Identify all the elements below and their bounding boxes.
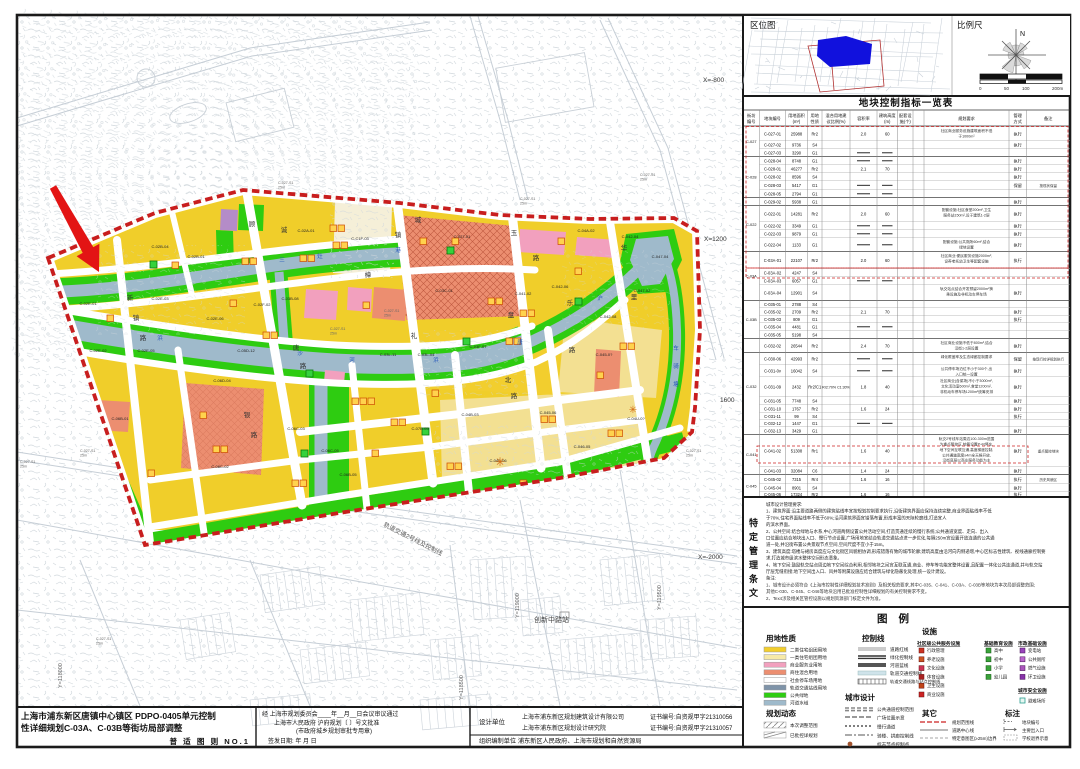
svg-text:1447: 1447 [792, 421, 802, 426]
svg-text:8596: 8596 [792, 174, 802, 179]
svg-text:Rr2: Rr2 [811, 131, 818, 136]
svg-text:口位置应结合地块出入口、慢行节点设置,广场用地宜结合轨道交通: 口位置应结合地块出入口、慢行节点设置,广场用地宜结合轨道交通站点进一步优化,每隔… [766, 535, 995, 542]
svg-text:管理: 管理 [1014, 112, 1023, 119]
svg-text:3349: 3349 [792, 223, 802, 228]
svg-text:S4: S4 [812, 398, 818, 403]
svg-text:25m: 25m [96, 642, 103, 646]
svg-text:C-02A-01: C-02A-01 [297, 228, 315, 233]
svg-text:3429: 3429 [792, 428, 802, 433]
svg-text:执行: 执行 [1014, 413, 1022, 419]
svg-text:C-032-13: C-032-13 [764, 428, 782, 433]
svg-text:定: 定 [748, 531, 759, 542]
svg-text:S4: S4 [812, 368, 818, 373]
svg-text:新: 新 [127, 293, 134, 302]
svg-text:46277: 46277 [791, 166, 803, 171]
svg-text:25m: 25m [520, 202, 527, 206]
svg-text:24: 24 [885, 468, 890, 473]
svg-text:809: 809 [793, 317, 801, 322]
svg-text:9879: 9879 [792, 231, 802, 236]
svg-text:条: 条 [748, 573, 759, 584]
svg-text:C-045-04: C-045-04 [764, 485, 782, 490]
svg-text:上海市浦东新区规划设计研究院: 上海市浦东新区规划设计研究院 [522, 724, 606, 732]
svg-text:32084: 32084 [791, 468, 803, 473]
svg-text:100: 100 [1022, 86, 1030, 91]
svg-text:执行: 执行 [1014, 173, 1022, 179]
svg-text:Y=119500: Y=119500 [657, 585, 663, 610]
svg-text:24: 24 [885, 406, 890, 411]
svg-text:4481: 4481 [792, 324, 802, 329]
svg-text:唐: 唐 [517, 338, 523, 346]
svg-text:轨道交通控制线: 轨道交通控制线 [890, 670, 923, 677]
svg-text:C-032: C-032 [746, 384, 757, 389]
svg-text:普 适 图 则 NO.1: 普 适 图 则 NO.1 [169, 736, 250, 746]
svg-text:42993: 42993 [791, 356, 803, 361]
svg-text:60: 60 [885, 258, 890, 263]
svg-text:G1: G1 [812, 421, 818, 426]
svg-text:2.4: 2.4 [861, 343, 867, 348]
svg-text:路: 路 [140, 333, 147, 342]
svg-text:行政管理: 行政管理 [927, 647, 945, 654]
svg-text:C-03A-04: C-03A-04 [764, 290, 782, 295]
svg-text:C-031-0v: C-031-0v [764, 368, 782, 373]
svg-text:玉: 玉 [511, 229, 518, 237]
svg-text:C-03L-11: C-03L-11 [380, 352, 397, 357]
svg-text:执行: 执行 [1014, 405, 1022, 411]
svg-text:7315: 7315 [792, 477, 802, 482]
svg-text:轨道交通站线用地: 轨道交通站线用地 [790, 684, 827, 691]
svg-text:C-022-04: C-022-04 [764, 242, 782, 247]
svg-text:道路红线: 道路红线 [890, 646, 909, 653]
svg-text:特: 特 [749, 517, 758, 528]
svg-text:6057: 6057 [792, 278, 802, 283]
svg-text:X=-800: X=-800 [703, 77, 725, 84]
svg-text:3、建筑高度:塔楼与裙房高度应与文化街区风貌相协调,形成错落: 3、建筑高度:塔楼与裙房高度应与文化街区风貌相协调,形成错落有致的城市轮廓;建筑… [766, 548, 1046, 555]
svg-text:C-027-S1: C-027-S1 [686, 449, 701, 453]
svg-text:河道水域: 河道水域 [790, 700, 809, 707]
svg-text:社区商业服务设施建筑面积不低: 社区商业服务设施建筑面积不低 [941, 128, 993, 133]
svg-text:C-06D-04: C-06D-04 [213, 378, 231, 383]
svg-text:公共停车场泊位不小于300个,出: 公共停车场泊位不小于300个,出 [941, 366, 993, 371]
svg-text:路: 路 [511, 391, 518, 400]
svg-text:G1: G1 [812, 242, 818, 247]
svg-text:社区级公共服务设施: 社区级公共服务设施 [916, 640, 960, 647]
svg-text:C-029-02: C-029-02 [764, 199, 782, 204]
svg-text:创新中路站: 创新中路站 [534, 615, 569, 624]
svg-text:社区商业(含菜场)不小于3000m²,: 社区商业(含菜场)不小于3000m², [940, 378, 993, 383]
svg-text:上海市浦东新区规划建筑设计有限公司: 上海市浦东新区规划建筑设计有限公司 [522, 713, 624, 721]
svg-text:C-041-02: C-041-02 [515, 291, 532, 296]
svg-text:25m: 25m [330, 332, 337, 336]
svg-text:性质: 性质 [811, 118, 819, 125]
svg-text:C-02E-05: C-02E-05 [137, 348, 155, 353]
svg-text:Rr2: Rr2 [811, 406, 818, 411]
svg-text:G1: G1 [812, 317, 818, 322]
svg-text:C-042-06: C-042-06 [552, 284, 569, 289]
svg-text:C-02F-02: C-02F-02 [254, 302, 272, 307]
svg-text:编号: 编号 [747, 118, 755, 125]
svg-text:执行: 执行 [1014, 257, 1022, 263]
svg-text:文: 文 [748, 587, 759, 598]
svg-text:25m: 25m [686, 454, 693, 458]
svg-text:街坊: 街坊 [747, 112, 755, 119]
svg-text:(m²): (m²) [793, 119, 801, 124]
svg-text:环卫设施: 环卫设施 [1028, 673, 1046, 680]
svg-text:设施: 设施 [922, 626, 937, 636]
svg-text:C-03C-01: C-03C-01 [435, 288, 453, 293]
svg-text:C-04U-0?: C-04U-0? [627, 416, 645, 421]
svg-text:道一处,并沿街布置公共景观节点空间,空间尺度不宜小于15m。: 道一处,并沿街布置公共景观节点空间,空间尺度不宜小于15m。 [766, 541, 887, 548]
svg-text:区位图: 区位图 [750, 20, 776, 30]
svg-text:2788: 2788 [792, 302, 802, 307]
svg-text:C-03B-08: C-03B-08 [281, 296, 299, 301]
svg-text:25m: 25m [640, 178, 647, 182]
svg-text:C-05D-12: C-05D-12 [237, 348, 255, 353]
svg-text:的滨水界面。: 的滨水界面。 [766, 521, 792, 528]
svg-text:规划要求: 规划要求 [958, 115, 976, 122]
svg-text:C-035-02: C-035-02 [764, 309, 782, 314]
svg-text:C-06C-02: C-06C-02 [211, 464, 229, 469]
svg-text:25988: 25988 [791, 131, 803, 136]
svg-text:1767: 1767 [792, 406, 802, 411]
svg-text:C-04B-03: C-04B-03 [461, 412, 479, 417]
svg-text:公共厕所: 公共厕所 [1028, 656, 1046, 663]
svg-text:执行: 执行 [1014, 210, 1022, 216]
svg-text:商业服务业用地: 商业服务业用地 [790, 662, 823, 669]
svg-text:2.0: 2.0 [861, 211, 867, 216]
svg-text:S4: S4 [812, 332, 818, 337]
svg-text:C-028-02: C-028-02 [764, 174, 782, 179]
svg-text:求,打造城市级滨水整体空间形态意象。: 求,打造城市级滨水整体空间形态意象。 [766, 555, 842, 562]
svg-text:执行: 执行 [1014, 165, 1022, 171]
svg-text:执行: 执行 [1014, 130, 1022, 136]
svg-text:14281: 14281 [791, 211, 803, 216]
svg-text:C-028-01: C-028-01 [764, 166, 782, 171]
svg-text:1.6: 1.6 [861, 477, 867, 482]
svg-text:执行: 执行 [1014, 308, 1022, 314]
svg-text:镇: 镇 [395, 230, 402, 239]
svg-text:C-045-02: C-045-02 [764, 477, 782, 482]
svg-text:2794: 2794 [792, 191, 802, 196]
svg-text:25m: 25m [20, 465, 27, 469]
svg-text:Y=118500: Y=118500 [459, 675, 465, 700]
svg-text:C-027-S1: C-027-S1 [96, 637, 111, 641]
svg-text:配套设: 配套设 [899, 112, 912, 119]
svg-text:灶: 灶 [317, 252, 323, 260]
svg-text:轨交站点结合开发预留2000m²换: 轨交站点结合开发预留2000m²换 [940, 286, 993, 291]
svg-text:C-027-S1: C-027-S1 [20, 460, 35, 464]
svg-text:顾: 顾 [249, 220, 256, 228]
svg-text:执行: 执行 [1014, 222, 1022, 228]
svg-text:特定意图区(≥25m)边界: 特定意图区(≥25m)边界 [952, 735, 997, 742]
svg-text:G1: G1 [812, 324, 818, 329]
svg-text:25m: 25m [278, 186, 285, 190]
svg-text:基础教育设施: 基础教育设施 [984, 640, 1013, 647]
svg-text:C-031-10: C-031-10 [764, 406, 782, 411]
svg-text:路: 路 [300, 361, 307, 370]
svg-text:C-022-01: C-022-01 [764, 211, 782, 216]
svg-text:✳: ✳ [495, 455, 505, 469]
svg-text:理: 理 [749, 560, 758, 570]
svg-text:设养老托幼卫生等配套设施: 设养老托幼卫生等配套设施 [944, 259, 989, 264]
svg-text:25m: 25m [80, 454, 87, 458]
svg-text:C-031-09: C-031-09 [764, 384, 782, 389]
svg-text:银: 银 [244, 410, 251, 419]
svg-text:C-027-S1: C-027-S1 [278, 181, 293, 185]
svg-text:避难场所: 避难场所 [1028, 698, 1046, 705]
svg-text:C-032-12: C-032-12 [764, 421, 782, 426]
svg-text:C-031-05: C-031-05 [764, 398, 782, 403]
svg-text:C-046-05: C-046-05 [574, 444, 591, 449]
svg-text:乐: 乐 [567, 298, 574, 307]
svg-text:5417: 5417 [792, 183, 802, 188]
svg-text:其他C-030、C-045、C-046等地块沿用已批准控制性: 其他C-030、C-045、C-046等地块沿用已批准控制性详细规划的有关控制要… [766, 588, 929, 595]
svg-text:C-07B-05: C-07B-05 [411, 426, 429, 431]
svg-text:控制线: 控制线 [862, 633, 885, 643]
svg-text:C-027-01: C-027-01 [454, 234, 471, 239]
svg-text:地块编号: 地块编号 [1022, 719, 1040, 726]
svg-text:变电站: 变电站 [1028, 647, 1042, 654]
svg-text:8748: 8748 [792, 158, 802, 163]
svg-text:执行: 执行 [1014, 316, 1022, 322]
svg-text:C-027-S1: C-027-S1 [384, 309, 399, 313]
svg-text:养老设施: 养老设施 [927, 656, 945, 663]
svg-text:G1: G1 [812, 428, 818, 433]
svg-text:C-028-03: C-028-03 [764, 183, 782, 188]
svg-text:经 上海市规划委员会____年__月__日会议审议通过: 经 上海市规划委员会____年__月__日会议审议通过 [262, 710, 398, 718]
svg-text:证书编号:自资规甲字21310057: 证书编号:自资规甲字21310057 [650, 724, 733, 732]
svg-text:G1: G1 [812, 223, 818, 228]
svg-text:上海市浦东新区唐镇中心镇区 PDPO-0405单元控制: 上海市浦东新区唐镇中心镇区 PDPO-0405单元控制 [21, 710, 216, 721]
svg-text:按现状保留: 按现状保留 [1040, 183, 1058, 188]
svg-text:99: 99 [794, 414, 799, 419]
svg-text:G1: G1 [812, 158, 818, 163]
svg-text:C-03A-02: C-03A-02 [764, 270, 782, 275]
svg-text:公共通道控制范围: 公共通道控制范围 [877, 706, 914, 713]
svg-text:塘: 塘 [673, 380, 679, 388]
svg-text:社区商业设施不低于800m²,结合: 社区商业设施不低于800m²,结合 [940, 340, 992, 345]
svg-text:G1: G1 [812, 191, 818, 196]
svg-text:初中: 初中 [994, 656, 1003, 663]
svg-text:比例尺: 比例尺 [957, 20, 983, 30]
svg-text:C-022-03: C-022-03 [764, 231, 782, 236]
svg-text:C-02E-03: C-02E-03 [151, 296, 169, 301]
svg-text:Rr2: Rr2 [811, 258, 818, 263]
svg-text:C6: C6 [812, 468, 818, 473]
svg-text:保留: 保留 [1014, 355, 1022, 361]
svg-text:C-027-02: C-027-02 [764, 142, 782, 147]
svg-text:2.0: 2.0 [861, 258, 867, 263]
svg-text:Rr2: Rr2 [811, 211, 818, 216]
svg-text:C-035-03: C-035-03 [764, 317, 782, 322]
svg-text:2.1: 2.1 [861, 166, 867, 171]
svg-text:方式: 方式 [1014, 118, 1023, 125]
svg-text:河: 河 [349, 356, 355, 364]
svg-text:用地面积: 用地面积 [788, 112, 805, 119]
svg-text:1.6: 1.6 [861, 406, 867, 411]
svg-text:C-027-03: C-027-03 [764, 150, 782, 155]
svg-text:城: 城 [415, 216, 422, 224]
svg-text:慢行通道: 慢行通道 [877, 724, 896, 731]
svg-text:规划动态: 规划动态 [766, 708, 796, 718]
svg-text:执行: 执行 [1014, 157, 1022, 163]
svg-text:1.4: 1.4 [861, 468, 867, 473]
svg-text:设计单位: 设计单位 [479, 717, 506, 726]
svg-text:地块控制指标一览表: 地块控制指标一览表 [859, 97, 954, 109]
svg-text:三: 三 [279, 257, 285, 264]
svg-text:混合用地建: 混合用地建 [826, 112, 848, 119]
svg-text:1133: 1133 [792, 242, 802, 247]
svg-text:1.8: 1.8 [861, 384, 867, 389]
svg-text:2.0: 2.0 [861, 131, 867, 136]
svg-text:公共绿地: 公共绿地 [790, 692, 809, 699]
svg-text:(m): (m) [884, 119, 891, 124]
svg-text:骑楼、拱廊控制线: 骑楼、拱廊控制线 [877, 733, 914, 740]
svg-text:S4: S4 [812, 142, 818, 147]
svg-text:C-028-04: C-028-04 [764, 158, 782, 163]
svg-text:市政基础设施: 市政基础设施 [1018, 640, 1047, 647]
svg-text:卫生设施: 卫生设施 [927, 682, 945, 689]
svg-text:城市设计: 城市设计 [845, 692, 875, 702]
svg-text:配套设施:社区食堂200m²,卫生: 配套设施:社区食堂200m²,卫生 [942, 207, 992, 212]
svg-text:组织编制单位 浦东新区人民政府、上海市规划和自然资源局: 组织编制单位 浦东新区人民政府、上海市规划和自然资源局 [479, 737, 642, 745]
svg-text:70: 70 [885, 343, 890, 348]
svg-text:镇: 镇 [133, 313, 140, 322]
svg-text:C-03B: C-03B [746, 317, 757, 322]
svg-text:2、公共空间:结合绿地与水系,中心河道两侧设置公共活动空间,: 2、公共空间:结合绿地与水系,中心河道两侧设置公共活动空间,打造贯通连续的慢行系… [766, 528, 989, 535]
svg-text:C-042-08: C-042-08 [600, 314, 617, 319]
svg-text:标志节点控制点: 标志节点控制点 [877, 741, 910, 748]
svg-text:C-028: C-028 [746, 175, 757, 180]
svg-text:道路中心线: 道路中心线 [952, 727, 975, 734]
svg-text:主要出入口: 主要出入口 [1022, 727, 1044, 734]
svg-text:16: 16 [885, 477, 890, 482]
svg-text:用地性质: 用地性质 [766, 633, 796, 643]
svg-text:城市安全设施: 城市安全设施 [1018, 687, 1047, 694]
svg-text:入口统一设置: 入口统一设置 [955, 372, 977, 377]
svg-text:执行: 执行 [1014, 397, 1022, 403]
svg-text:骑: 骑 [673, 362, 679, 370]
svg-text:25m: 25m [384, 314, 391, 318]
svg-text:北: 北 [505, 376, 512, 384]
svg-text:容积率: 容积率 [857, 115, 870, 122]
svg-text:S4: S4 [812, 302, 818, 307]
svg-text:C-027: C-027 [746, 139, 757, 144]
svg-text:C-041-03: C-041-03 [764, 468, 782, 473]
svg-text:广场位置示意: 广场位置示意 [877, 715, 905, 722]
svg-text:性详细规划C-03A、C-03B等街坊局部调整: 性详细规划C-03A、C-03B等街坊局部调整 [21, 722, 183, 733]
svg-text:管: 管 [749, 545, 758, 556]
svg-text:C-031-11: C-031-11 [764, 414, 781, 419]
svg-text:沿街1-2层设置: 沿街1-2层设置 [955, 346, 979, 351]
svg-text:礼: 礼 [411, 331, 418, 340]
svg-text:社会停车场用地: 社会停车场用地 [790, 677, 823, 684]
svg-text:C-03F-07: C-03F-07 [470, 344, 488, 349]
svg-text:城市设计管理要求:: 城市设计管理要求: [766, 501, 802, 508]
svg-text:服务站150m²,设于建筑1-2层: 服务站150m²,设于建筑1-2层 [943, 213, 990, 218]
svg-text:N: N [1020, 31, 1025, 38]
svg-text:C-027-S1: C-027-S1 [520, 197, 535, 201]
svg-text:轨交2号线车站周边100-300m范围: 轨交2号线车站周边100-300m范围 [939, 436, 995, 441]
svg-text:5198: 5198 [792, 332, 802, 337]
svg-text:商住混合用地: 商住混合用地 [790, 669, 818, 676]
svg-text:证书编号:自资规甲字21310056: 证书编号:自资规甲字21310056 [650, 713, 733, 721]
svg-text:绿化控制线: 绿化控制线 [890, 654, 913, 661]
svg-text:诚: 诚 [281, 225, 288, 234]
svg-text:公共通道宽度≥4m全天候开放,: 公共通道宽度≥4m全天候开放, [942, 452, 991, 457]
svg-text:C-02B-04: C-02B-04 [151, 244, 169, 249]
svg-text:200m: 200m [1052, 86, 1064, 91]
svg-text:C-04A-02: C-04A-02 [577, 228, 595, 233]
svg-text:G1: G1 [812, 278, 818, 283]
svg-text:3290: 3290 [792, 150, 802, 155]
svg-text:C-035-05: C-035-05 [764, 332, 782, 337]
svg-text:樟: 樟 [365, 270, 372, 279]
svg-text:2.1: 2.1 [861, 309, 867, 314]
svg-text:乘设施及非机动车停车场: 乘设施及非机动车停车场 [946, 292, 987, 297]
svg-text:本次调整范围: 本次调整范围 [790, 722, 818, 729]
svg-text:执行: 执行 [1014, 342, 1022, 348]
svg-text:非机动车停车场1200m²统筹安排: 非机动车停车场1200m²统筹安排 [940, 389, 993, 394]
svg-text:执行: 执行 [1014, 198, 1022, 204]
svg-text:1、建筑界面:沿主要道路两侧的建筑贴线率宜按规划控制要求执行: 1、建筑界面:沿主要道路两侧的建筑贴线率宜按规划控制要求执行,沿街建筑界面应保持… [766, 508, 992, 515]
svg-text:Y=119000: Y=119000 [515, 593, 521, 618]
svg-text:70: 70 [885, 166, 890, 171]
svg-text:C-02E-06: C-02E-06 [206, 316, 224, 321]
svg-text:16042: 16042 [791, 368, 803, 373]
svg-text:C-02E-01: C-02E-01 [79, 301, 97, 306]
svg-text:用地: 用地 [811, 112, 820, 119]
svg-text:地块编号: 地块编号 [764, 115, 781, 122]
svg-text:C-047-04: C-047-04 [652, 254, 669, 259]
svg-text:二类住宅组团用地: 二类住宅组团用地 [790, 646, 827, 653]
svg-text:C-03A-03: C-03A-03 [764, 278, 782, 283]
svg-text:G1: G1 [812, 199, 818, 204]
svg-text:高中: 高中 [994, 647, 1003, 654]
svg-text:8901: 8901 [792, 485, 802, 490]
svg-text:C-045: C-045 [746, 483, 757, 488]
svg-text:X=-2000: X=-2000 [698, 554, 723, 561]
svg-text:Rr2: Rr2 [811, 166, 818, 171]
svg-text:社区商业:便民服务设施2000m²,: 社区商业:便民服务设施2000m², [941, 253, 992, 258]
svg-text:体育设施: 体育设施 [927, 673, 945, 680]
svg-text:(市政府城乡规划审批专用章): (市政府城乡规划审批专用章) [296, 727, 372, 735]
svg-text:7748: 7748 [792, 398, 802, 403]
svg-text:26544: 26544 [791, 343, 803, 348]
svg-text:盘: 盘 [508, 310, 515, 319]
svg-text:2709: 2709 [792, 309, 802, 314]
svg-text:执行: 执行 [1014, 289, 1022, 295]
svg-text:C-C1F-03: C-C1F-03 [351, 236, 369, 241]
svg-text:厅层无缝衔接;地下空间出入口、风井等附属设施应结合建筑与绿化: 厅层无缝衔接;地下空间出入口、风井等附属设施应结合建筑与绿化隐蔽化处理,统一设计… [766, 568, 948, 575]
svg-text:绿地设置: 绿地设置 [959, 245, 974, 250]
svg-text:9736: 9736 [792, 142, 802, 147]
svg-text:12901: 12901 [791, 290, 803, 295]
svg-text:C-06C-05: C-06C-05 [321, 448, 339, 453]
svg-text:4247: 4247 [792, 270, 802, 275]
svg-text:河道蓝线: 河道蓝线 [890, 662, 909, 669]
svg-text:Rr1: Rr1 [811, 448, 818, 453]
svg-text:路: 路 [251, 430, 258, 439]
svg-text:S4: S4 [812, 485, 818, 490]
svg-text:C-027-S1: C-027-S1 [640, 173, 655, 177]
svg-text:小学: 小学 [994, 665, 1003, 672]
svg-text:执行: 执行 [1014, 367, 1022, 373]
svg-text:C-035-04: C-035-04 [764, 324, 782, 329]
svg-text:文化设施: 文化设施 [927, 665, 945, 672]
svg-text:执行: 执行 [1014, 447, 1022, 453]
svg-text:C-03A-01: C-03A-01 [764, 258, 782, 263]
svg-text:议比例(%): 议比例(%) [826, 118, 846, 125]
